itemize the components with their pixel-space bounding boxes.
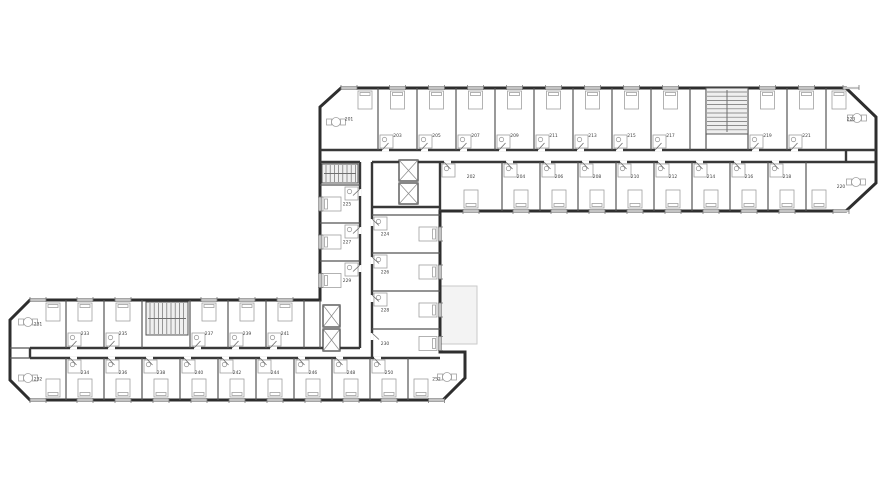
room-number-label: 218 <box>783 174 792 180</box>
room-number-label: 207 <box>471 133 480 139</box>
room-number-label: 228 <box>381 308 390 314</box>
room-number-label: 235 <box>119 331 128 337</box>
room-number-label: 246 <box>309 370 318 376</box>
stairs-symbol <box>706 88 748 134</box>
room-number-label: 211 <box>549 133 558 139</box>
room-number-label: 240 <box>195 370 204 376</box>
room-number-label: 217 <box>666 133 675 139</box>
room-number-label: 206 <box>555 174 564 180</box>
room-number-label: 214 <box>707 174 716 180</box>
room-number-label: 244 <box>271 370 280 376</box>
room-number-label: 236 <box>119 370 128 376</box>
room-number-label: 209 <box>510 133 519 139</box>
room-number-label: 237 <box>205 331 214 337</box>
room-number-label: 213 <box>588 133 597 139</box>
stairs-symbol <box>146 302 188 335</box>
elevator-symbol <box>399 183 418 204</box>
elevator-symbol <box>399 160 418 181</box>
room-number-label: 223 <box>847 117 856 123</box>
room-number-label: 233 <box>81 331 90 337</box>
room-number-label: 208 <box>593 174 602 180</box>
room-number-label: 216 <box>745 174 754 180</box>
room-number-label: 226 <box>381 270 390 276</box>
room-number-label: 224 <box>381 232 390 238</box>
room-number-label: 241 <box>281 331 290 337</box>
room-number-label: 242 <box>233 370 242 376</box>
floor-plan-svg: 2012032052072092112132152172192212232022… <box>0 0 880 495</box>
room-number-label: 250 <box>385 370 394 376</box>
building-outline <box>10 88 876 400</box>
floor-plan-page: 2012032052072092112132152172192212232022… <box>0 0 880 495</box>
stairs-symbol <box>322 164 358 183</box>
room-number-label: 234 <box>81 370 90 376</box>
room-number-label: 215 <box>627 133 636 139</box>
room-number-label: 239 <box>243 331 252 337</box>
room-number-label: 248 <box>347 370 356 376</box>
room-number-label: 232 <box>34 377 43 383</box>
elevator-symbol <box>323 329 340 351</box>
room-number-label: 202 <box>467 174 476 180</box>
elevator-symbol <box>323 305 340 327</box>
room-number-label: 219 <box>763 133 772 139</box>
room-number-label: 221 <box>802 133 811 139</box>
room-number-label: 212 <box>669 174 678 180</box>
room-number-label: 230 <box>381 341 390 347</box>
room-number-label: 204 <box>517 174 526 180</box>
room-number-label: 227 <box>343 240 352 246</box>
room-number-label: 203 <box>393 133 402 139</box>
room-number-label: 238 <box>157 370 166 376</box>
room-number-label: 229 <box>343 278 352 284</box>
room-number-label: 201 <box>345 117 354 123</box>
room-number-label: 231 <box>34 322 43 328</box>
room-number-label: 210 <box>631 174 640 180</box>
room-number-label: 205 <box>432 133 441 139</box>
room-number-label: 220 <box>837 184 846 190</box>
room-number-label: 225 <box>343 202 352 208</box>
room-number-label: 252 <box>432 377 441 383</box>
